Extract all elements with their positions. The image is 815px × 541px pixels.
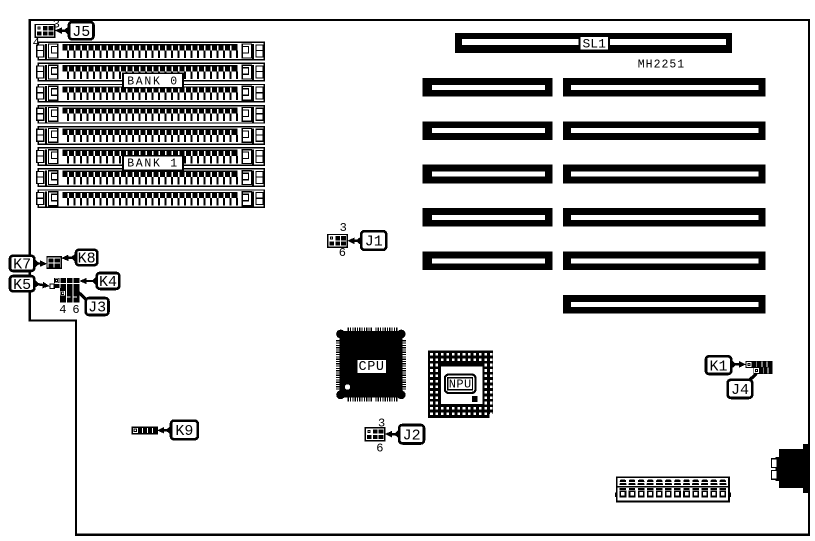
svg-text:BANK 1: BANK 1 [127, 158, 179, 171]
svg-text:J5: J5 [72, 24, 90, 41]
svg-text:4: 4 [59, 303, 66, 317]
svg-text:K5: K5 [13, 277, 31, 294]
svg-text:6: 6 [72, 303, 79, 317]
svg-text:J2: J2 [403, 427, 421, 444]
svg-text:J4: J4 [731, 382, 749, 399]
svg-text:J1: J1 [365, 234, 383, 251]
svg-text:J3: J3 [88, 300, 106, 317]
svg-text:K4: K4 [99, 274, 117, 291]
svg-text:SL1: SL1 [582, 36, 606, 51]
svg-text:K7: K7 [13, 257, 31, 274]
svg-text:CPU: CPU [359, 360, 385, 375]
svg-text:6: 6 [376, 441, 383, 455]
svg-text:3: 3 [378, 416, 385, 430]
svg-text:K8: K8 [78, 251, 96, 268]
svg-text:BANK 0: BANK 0 [127, 75, 179, 88]
svg-text:K9: K9 [175, 423, 193, 440]
svg-text:MH2251: MH2251 [638, 59, 685, 72]
svg-text:NPU: NPU [449, 378, 472, 392]
svg-text:4: 4 [33, 36, 40, 50]
svg-text:6: 6 [339, 246, 346, 260]
svg-text:K1: K1 [710, 358, 728, 375]
svg-text:3: 3 [340, 221, 347, 235]
